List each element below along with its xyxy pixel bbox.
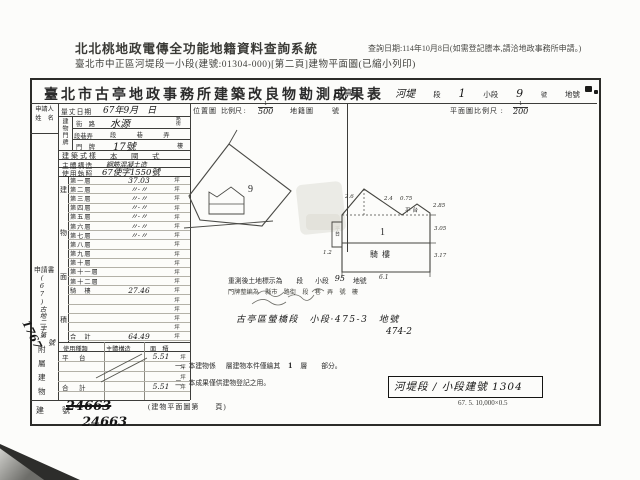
floor-label: 第十層 [68, 258, 108, 267]
area-col-char: 建 [60, 185, 67, 195]
district-label: 區 [370, 89, 378, 100]
attachment-row: 坪 [58, 362, 190, 372]
dim-label: 2.4 [384, 196, 393, 202]
ink-splotch [585, 86, 592, 92]
resurvey-hand-line2: 474-2 [386, 327, 412, 337]
subsection-no-hand: 1 [458, 87, 465, 100]
floor-row: 坪 [68, 295, 190, 304]
cadastral-map-label: 地籍圖 [290, 106, 314, 116]
resurvey-hand-line: 古亭區螢橋段 小段·475-3 地號 [236, 312, 400, 325]
survey-date-label: 量丈日期 [61, 106, 92, 116]
floor-label: 第三層 [68, 194, 108, 203]
section-name-hand: 河堤 [395, 85, 415, 100]
dim-label: 2.85 [433, 203, 445, 209]
lane-label: 段巷弄 [74, 131, 93, 140]
plan-arcade-label: 騎樓 [370, 249, 394, 260]
location-map-label: 位置圖 [193, 106, 217, 116]
document-subtitle: 臺北市中正區河堤段一小段(建號:01304-000)[第二頁]建物平面圖(已縮小… [75, 56, 416, 70]
area-col-char: 積 [60, 315, 67, 325]
plan-scale-fraction: 1 200 [513, 101, 528, 117]
grid-line [30, 133, 58, 134]
dim-label: 0.75 [400, 196, 412, 202]
subsection-label: 小段 [483, 89, 498, 100]
attachment-table: 平 台 5.51 坪 坪 坪 合 計 5.51 坪 [58, 352, 190, 392]
floor-area-unit: 坪 [170, 250, 184, 258]
floor-area-unit: 坪 [170, 222, 184, 230]
registry-section-box: 河堤段 / 小段建號 1304 [388, 376, 543, 398]
floor-label: 第十一層 [68, 267, 108, 276]
resurvey-line2: 門牌整編為 縣市 路街 段 巷 弄 號 樓 [228, 287, 358, 296]
lot-no-suffix: 號 [541, 90, 547, 99]
building-no-struck: 24663 [66, 399, 111, 414]
note-2: 二、本成果僅供建物登記之用。 [175, 377, 270, 387]
address-block-label: 建物門牌 [60, 118, 69, 150]
lot-label: 地號 [565, 89, 580, 100]
street-value: 水源 [110, 115, 130, 130]
grid-line [347, 103, 348, 252]
door-no-suffix: 樓 [177, 141, 183, 150]
floor-area-unit: 坪 [170, 204, 184, 212]
floor-area-value: 27.46 [108, 286, 170, 295]
floor-area-unit: 坪 [170, 268, 184, 276]
grid-line [72, 128, 190, 129]
floor-area-value: 64.49 [108, 332, 170, 341]
application-no-prefix: (67)古地二字第 [37, 274, 47, 322]
dim-label: 3.05 [434, 226, 446, 232]
dim-label: 3.17 [434, 253, 446, 259]
floor-area-unit: 坪 [170, 286, 184, 294]
floor-area-unit: 坪 [170, 213, 184, 221]
street-suffix: 路 街 [176, 117, 181, 128]
floor-area-value: 〃·〃 [108, 230, 170, 241]
attachment-side-char: 屬 [38, 358, 46, 369]
cadastral-no-suffix: 號 [332, 106, 339, 116]
floor-area-unit: 坪 [170, 332, 184, 340]
door-no-label: 門 牌 [76, 142, 95, 151]
floor-row: 騎 樓 27.46 坪 [68, 286, 190, 295]
floor-row: 合 計 64.49 坪 [68, 332, 190, 341]
applicant-label: 申請人 姓 名 [32, 105, 57, 124]
application-no-suffix: 號 [48, 338, 55, 348]
location-line: 古亭 區 河堤 段 1 小段 9 號 地號 [332, 85, 580, 100]
building-no-value: 24663 [82, 415, 127, 430]
dim-label: 2.6 [345, 194, 354, 200]
attachment-row: 平 台 5.51 坪 [58, 352, 190, 362]
attachment-area-value: 5.51 [146, 352, 176, 361]
floor-row: 坪 [68, 305, 190, 314]
floor-label: 第一層 [68, 176, 108, 185]
ink-splotch [594, 90, 598, 94]
grid-line [72, 116, 73, 150]
lot-no-hand: 9 [516, 87, 523, 100]
scanned-document-page: 北北桃地政電傳全功能地籍資料查詢系統 查詢日期:114年10月8日(如需登記謄本… [0, 0, 640, 480]
parcel-no-label: 9 [248, 184, 253, 195]
query-date: 查詢日期:114年10月8日(如需登記謄本,請洽地政事務所申請。) [368, 43, 581, 54]
floor-label: 第四層 [68, 203, 108, 212]
system-title: 北北桃地政電傳全功能地籍資料查詢系統 [75, 38, 318, 57]
floor-label: 騎 樓 [68, 286, 108, 295]
floor-area-unit: 坪 [170, 194, 184, 202]
floor-area-unit: 坪 [170, 314, 184, 322]
section-district-hand: 古亭 [332, 85, 352, 100]
location-scale-fraction: 1 500 [258, 101, 273, 117]
dim-label: 6.1 [379, 274, 389, 281]
grid-line [190, 103, 191, 400]
floor-area-unit: 坪 [170, 231, 184, 239]
attachment-side-char: 建 [38, 372, 46, 383]
note-1-floor-count: 1 [288, 360, 292, 370]
print-code: 67. 5. 10,000×0.5 [458, 399, 507, 407]
floor-label: 第五層 [68, 212, 108, 221]
floor-label: 第十二層 [68, 277, 108, 286]
area-col-char: 物 [60, 228, 67, 238]
floor-area-unit: 坪 [170, 296, 184, 304]
resurvey-line1: 重測後土地標示為 段 小段 95 地號 [228, 275, 367, 285]
dim-label: 1.2 [323, 250, 332, 256]
plan-page-note: (建物平面圖第 頁) [148, 402, 227, 412]
floor-area-unit: 坪 [170, 277, 184, 285]
resurvey-hand-no: 95 [335, 274, 345, 283]
floor-label: 第八層 [68, 240, 108, 249]
attachment-row: 坪 [58, 372, 190, 382]
floor-area-unit: 坪 [170, 259, 184, 267]
registry-section-value: 河堤段 / 小段建號 1304 [394, 379, 523, 394]
floor-row: 坪 [68, 314, 190, 323]
grid-line [58, 342, 190, 343]
floor-area-unit: 坪 [170, 240, 184, 248]
floor-label: 第六層 [68, 222, 108, 231]
floor-area-unit: 坪 [170, 305, 184, 313]
floor-label: 第七層 [68, 231, 108, 240]
section-label: 段 [433, 89, 441, 100]
floor-area-table: 第一層 37.03 坪 第二層 〃·〃 坪 第三層 〃·〃 坪 第四層 〃·〃 … [68, 176, 190, 341]
attachment-side-char: 物 [38, 386, 46, 397]
floor-area-unit: 坪 [170, 185, 184, 193]
attachment-row: 合 計 5.51 坪 [58, 382, 190, 392]
note-1: 一、本建物係 層建物本件僅繪其 1 層 部分。 [175, 360, 342, 370]
application-label: 申請書 [34, 264, 54, 274]
scale-label: 比例尺 : [221, 106, 246, 116]
floor-label: 第二層 [68, 185, 108, 194]
street-label: 街 路 [76, 119, 95, 128]
attachment-use: 合 計 [58, 382, 108, 392]
floor-label: 第九層 [68, 249, 108, 258]
plan-platform-label: 平台 [405, 206, 420, 214]
plan-scale-label: 平面圖比例尺 : [450, 106, 504, 116]
floor-area-unit: 坪 [170, 323, 184, 331]
floor-label: 合 計 [68, 332, 108, 341]
attachment-area-value: 5.51 [146, 382, 176, 391]
attachment-use: 平 台 [58, 352, 108, 362]
plan-platform-label-left: 平台 [333, 226, 340, 244]
floor-area-unit: 坪 [170, 176, 184, 184]
plan-unit-no: 1 [380, 227, 385, 238]
area-col-char: 面 [60, 272, 67, 282]
